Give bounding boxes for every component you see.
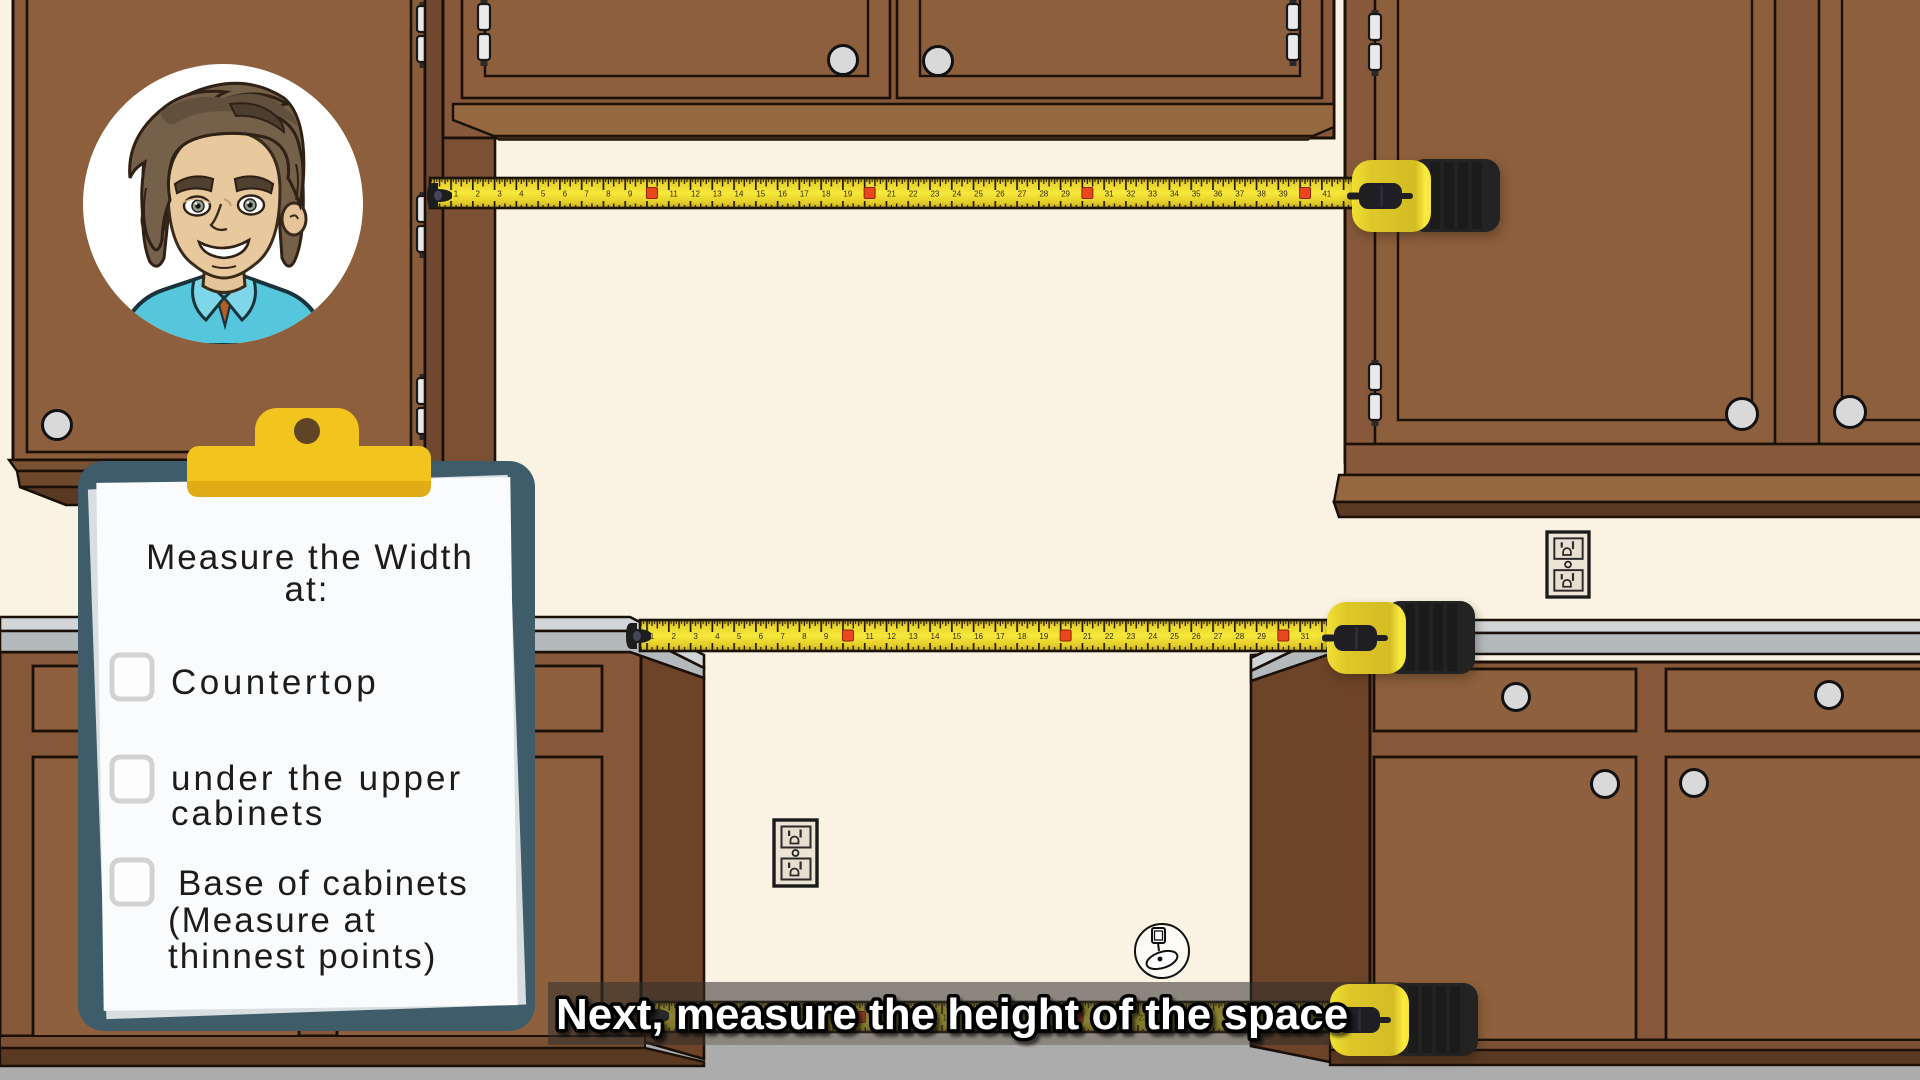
svg-text:8: 8 — [802, 632, 807, 641]
svg-text:15: 15 — [952, 632, 961, 641]
svg-text:25: 25 — [1170, 632, 1179, 641]
svg-text:16: 16 — [778, 190, 787, 199]
svg-text:28: 28 — [1235, 632, 1244, 641]
svg-text:cabinets: cabinets — [171, 794, 325, 833]
svg-text:24: 24 — [952, 190, 961, 199]
svg-text:9: 9 — [628, 190, 633, 199]
svg-text:7: 7 — [584, 190, 589, 199]
svg-text:23: 23 — [930, 190, 939, 199]
svg-text:at:: at: — [285, 570, 330, 609]
svg-text:Next, measure the height of th: Next, measure the height of the space — [556, 990, 1348, 1039]
svg-text:17: 17 — [800, 190, 809, 199]
svg-text:35: 35 — [1192, 190, 1201, 199]
svg-text:24: 24 — [1148, 632, 1157, 641]
svg-text:18: 18 — [822, 190, 831, 199]
svg-text:2: 2 — [476, 190, 481, 199]
svg-text:under the upper: under the upper — [171, 759, 463, 798]
svg-text:8: 8 — [606, 190, 611, 199]
svg-text:27: 27 — [1018, 190, 1027, 199]
svg-text:9: 9 — [824, 632, 829, 641]
svg-text:5: 5 — [737, 632, 742, 641]
svg-text:3: 3 — [497, 190, 502, 199]
svg-text:19: 19 — [1039, 632, 1048, 641]
svg-text:12: 12 — [887, 632, 896, 641]
svg-text:33: 33 — [1148, 190, 1157, 199]
svg-text:39: 39 — [1279, 190, 1288, 199]
svg-text:16: 16 — [974, 632, 983, 641]
svg-text:34: 34 — [1170, 190, 1179, 199]
svg-text:29: 29 — [1257, 632, 1266, 641]
svg-text:22: 22 — [909, 190, 918, 199]
svg-text:22: 22 — [1105, 632, 1114, 641]
svg-text:18: 18 — [1018, 632, 1027, 641]
svg-text:36: 36 — [1213, 190, 1222, 199]
svg-text:1: 1 — [454, 190, 459, 199]
svg-text:19: 19 — [843, 190, 852, 199]
svg-text:Countertop: Countertop — [171, 663, 379, 702]
svg-text:(Measure at: (Measure at — [168, 901, 377, 940]
svg-text:23: 23 — [1126, 632, 1135, 641]
svg-text:41: 41 — [1322, 190, 1331, 199]
svg-text:25: 25 — [974, 190, 983, 199]
svg-text:37: 37 — [1235, 190, 1244, 199]
svg-text:6: 6 — [563, 190, 568, 199]
svg-text:26: 26 — [996, 190, 1005, 199]
svg-text:13: 13 — [713, 190, 722, 199]
svg-text:29: 29 — [1061, 190, 1070, 199]
svg-text:13: 13 — [909, 632, 918, 641]
svg-text:26: 26 — [1192, 632, 1201, 641]
svg-text:6: 6 — [759, 632, 764, 641]
svg-text:3: 3 — [693, 632, 698, 641]
svg-text:14: 14 — [931, 632, 940, 641]
svg-text:21: 21 — [1083, 632, 1092, 641]
svg-text:15: 15 — [756, 190, 765, 199]
svg-text:thinnest points): thinnest points) — [168, 937, 437, 976]
svg-text:17: 17 — [996, 632, 1005, 641]
svg-text:38: 38 — [1257, 190, 1266, 199]
svg-text:32: 32 — [1126, 190, 1135, 199]
svg-text:14: 14 — [735, 190, 744, 199]
svg-text:11: 11 — [670, 190, 679, 199]
svg-text:27: 27 — [1214, 632, 1223, 641]
svg-text:28: 28 — [1039, 190, 1048, 199]
svg-text:7: 7 — [780, 632, 785, 641]
svg-text:12: 12 — [691, 190, 700, 199]
svg-text:31: 31 — [1105, 190, 1114, 199]
svg-text:21: 21 — [887, 190, 896, 199]
svg-text:4: 4 — [715, 632, 720, 641]
svg-text:5: 5 — [541, 190, 546, 199]
svg-text:Base of cabinets: Base of cabinets — [178, 864, 469, 903]
svg-text:11: 11 — [866, 632, 875, 641]
svg-text:2: 2 — [672, 632, 677, 641]
svg-text:31: 31 — [1301, 632, 1310, 641]
svg-text:4: 4 — [519, 190, 524, 199]
